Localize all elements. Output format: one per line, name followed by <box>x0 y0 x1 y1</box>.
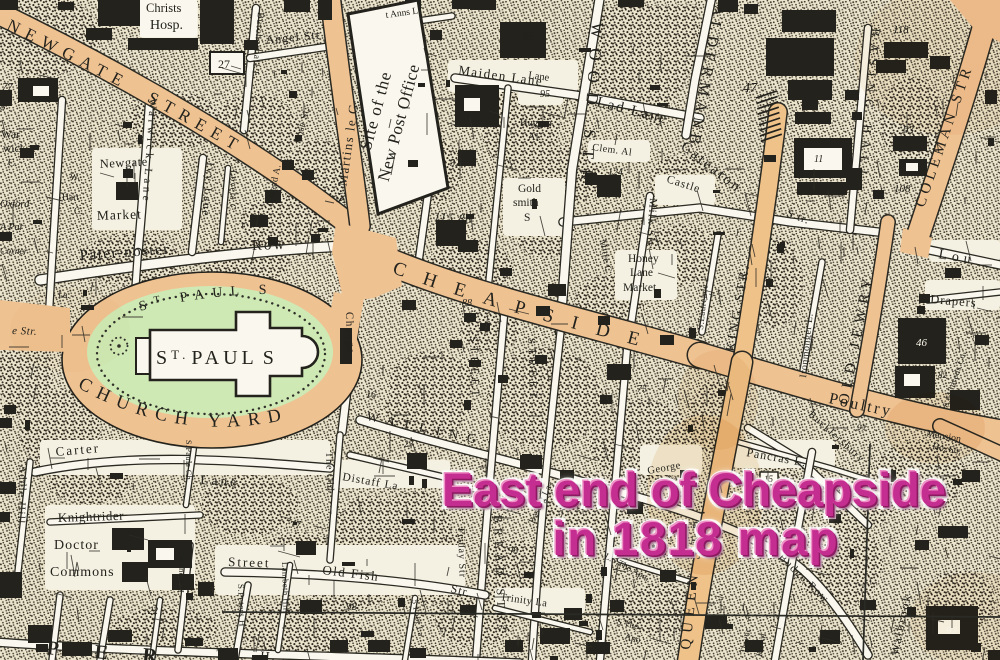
svg-text:E: E <box>93 641 109 660</box>
svg-text:27: 27 <box>218 57 230 71</box>
svg-text:82: 82 <box>938 370 948 380</box>
svg-text:R: R <box>141 644 158 660</box>
svg-text:77: 77 <box>2 81 14 93</box>
svg-text:Honey: Honey <box>628 253 659 265</box>
svg-text:47: 47 <box>743 81 758 96</box>
svg-text:Knightrider: Knightrider <box>58 508 125 525</box>
svg-text:118: 118 <box>893 24 909 36</box>
svg-text:16: 16 <box>366 390 376 401</box>
svg-text:STREET: STREET <box>525 338 539 403</box>
svg-text:63: 63 <box>903 124 915 136</box>
svg-text:S.Pauls Ch: S.Pauls Ch <box>184 440 193 480</box>
svg-text:War: War <box>1 129 20 141</box>
svg-text:S.Bennets H: S.Bennets H <box>176 545 188 593</box>
svg-text:Market: Market <box>97 206 142 223</box>
svg-text:98: 98 <box>346 601 358 613</box>
svg-text:75: 75 <box>637 384 647 395</box>
svg-text:A Par: A Par <box>0 222 24 233</box>
svg-text:108: 108 <box>894 183 911 195</box>
svg-text:La.: La. <box>57 290 70 300</box>
svg-text:S.Peters H: S.Peters H <box>236 584 247 627</box>
svg-text:Hart: Hart <box>62 193 79 203</box>
svg-text:95: 95 <box>540 89 550 100</box>
svg-text:22: 22 <box>148 606 158 617</box>
svg-text:STREET: STREET <box>467 336 481 401</box>
svg-text:Commons: Commons <box>50 565 115 580</box>
svg-text:Corner: Corner <box>0 247 28 257</box>
svg-text:Oxford: Oxford <box>0 199 30 210</box>
svg-text:Newgate: Newgate <box>99 155 148 171</box>
svg-text:W.: W. <box>70 172 80 182</box>
svg-text:Row: Row <box>252 237 287 254</box>
svg-text:Christs: Christs <box>146 1 182 15</box>
svg-text:Hosp.: Hosp. <box>150 18 183 33</box>
svg-text:T: T <box>216 646 225 660</box>
svg-text:C.: C. <box>74 206 82 216</box>
svg-text:46: 46 <box>916 337 928 349</box>
svg-text:S: S <box>524 212 530 224</box>
svg-text:25: 25 <box>404 439 414 449</box>
svg-text:wick: wick <box>3 143 26 155</box>
svg-text:H: H <box>260 648 270 660</box>
svg-text:Huggin: Huggin <box>520 118 552 129</box>
svg-text:e Str.: e Str. <box>12 325 37 338</box>
svg-text:Lane: Lane <box>630 267 653 279</box>
svg-text:92: 92 <box>946 625 958 637</box>
svg-text:8: 8 <box>0 101 6 113</box>
svg-text:124: 124 <box>608 167 623 178</box>
svg-text:P: P <box>45 637 59 660</box>
svg-text:Gold: Gold <box>518 183 541 195</box>
svg-text:C.: C. <box>8 158 17 169</box>
svg-text:Lambeth Hill: Lambeth Hill <box>280 562 292 614</box>
svg-text:11: 11 <box>814 154 823 165</box>
svg-text:smith: smith <box>513 197 539 209</box>
svg-text:Addle Hill: Addle Hill <box>15 465 28 525</box>
svg-text:Al.: Al. <box>528 132 541 143</box>
svg-text:Market: Market <box>623 282 657 294</box>
svg-text:32: 32 <box>449 158 461 169</box>
svg-text:Lovels C: Lovels C <box>228 170 239 211</box>
svg-text:Change: Change <box>343 312 356 355</box>
svg-text:Doctor: Doctor <box>54 538 99 553</box>
svg-text:88: 88 <box>462 298 472 309</box>
svg-text:48: 48 <box>520 28 534 43</box>
